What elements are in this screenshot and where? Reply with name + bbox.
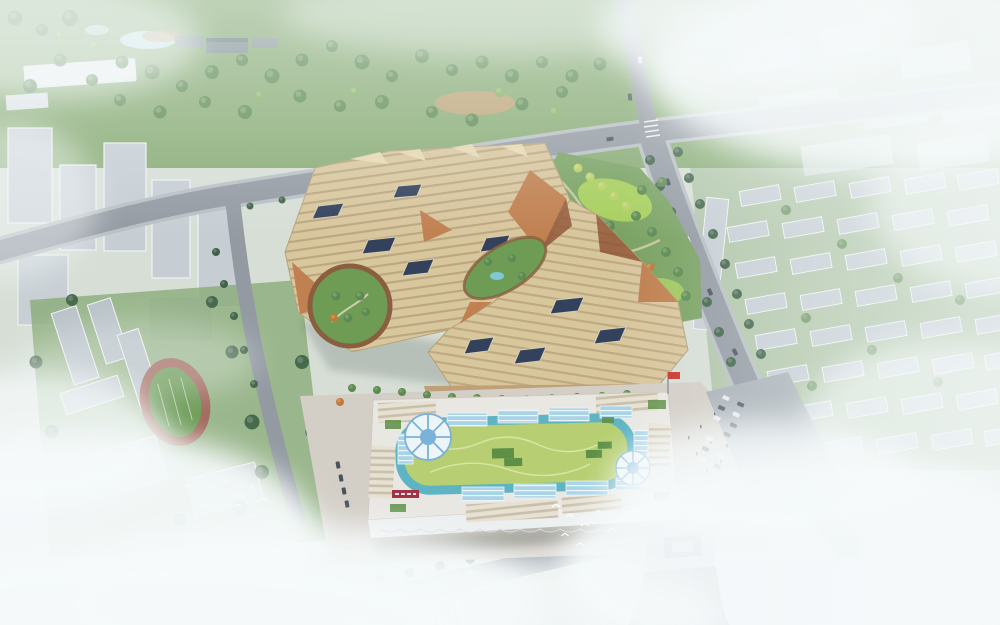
aerial-render-image <box>0 0 1000 625</box>
aerial-render-canvas <box>0 0 1000 625</box>
storefront-sign <box>392 490 419 498</box>
plaza-tree-autumn <box>336 398 344 406</box>
dome-tent-west <box>405 414 451 460</box>
courtyard-pool <box>490 272 504 280</box>
right-haze <box>620 0 1000 625</box>
circular-courtyard <box>310 266 390 346</box>
